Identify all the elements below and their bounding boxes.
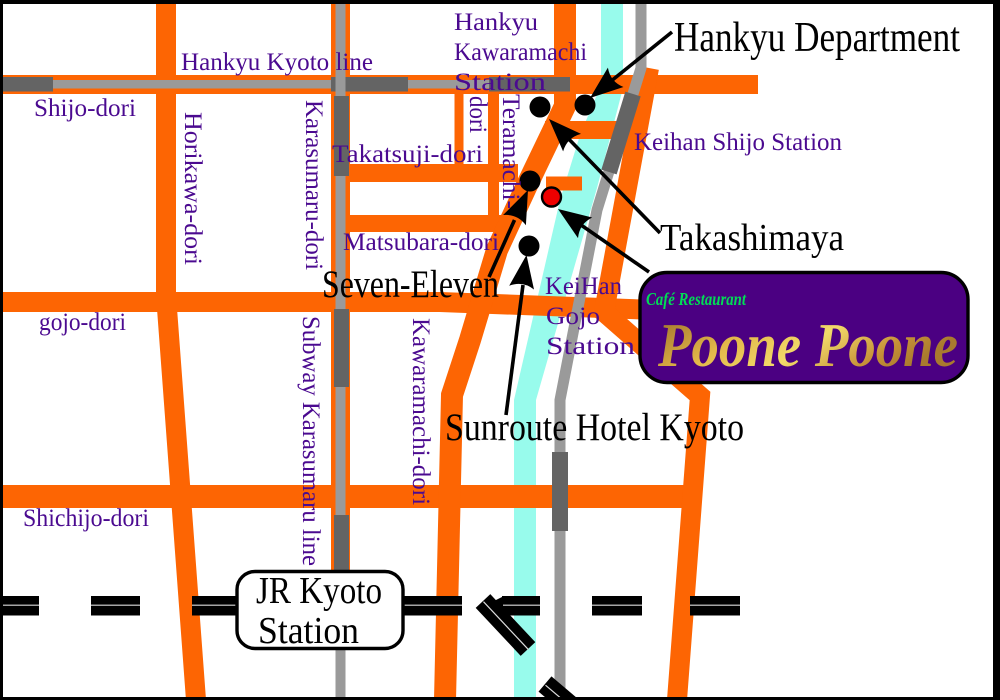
svg-text:Shijo-dori: Shijo-dori [34,95,136,122]
svg-text:Subway Karasumaru line: Subway Karasumaru line [297,316,324,566]
svg-text:Poone Poone: Poone Poone [657,312,958,380]
svg-text:Takashimaya: Takashimaya [660,217,844,259]
svg-text:Station: Station [258,610,359,652]
svg-text:Keihan Shijo Station: Keihan Shijo Station [634,129,842,156]
svg-text:Horikawa-dori: Horikawa-dori [179,112,206,265]
svg-text:Café Restaurant: Café Restaurant [646,289,747,309]
svg-text:Hankyu: Hankyu [454,9,539,36]
svg-text:Seven-Eleven: Seven-Eleven [322,263,499,306]
svg-text:Hankyu Department: Hankyu Department [674,15,960,61]
svg-text:Station: Station [546,333,636,360]
svg-text:Teramachi-: Teramachi- [497,94,524,209]
svg-text:JR Kyoto: JR Kyoto [256,570,382,612]
svg-text:Station: Station [454,69,547,96]
svg-text:Sunroute Hotel Kyoto: Sunroute Hotel Kyoto [445,406,744,449]
svg-text:Kawaramachi-dori: Kawaramachi-dori [407,318,434,505]
svg-text:Matsubara-dori: Matsubara-dori [343,229,499,256]
svg-text:dori: dori [464,96,491,133]
svg-text:Takatsuji-dori: Takatsuji-dori [332,141,483,168]
svg-text:Kawaramachi: Kawaramachi [454,39,587,66]
svg-text:Gojo: Gojo [546,303,600,330]
svg-text:Hankyu Kyoto line: Hankyu Kyoto line [181,49,373,76]
svg-text:Karasumaru-dori: Karasumaru-dori [300,100,327,270]
svg-text:gojo-dori: gojo-dori [39,309,126,336]
svg-text:Shichijo-dori: Shichijo-dori [23,505,149,532]
svg-text:KeiHan: KeiHan [545,273,622,300]
